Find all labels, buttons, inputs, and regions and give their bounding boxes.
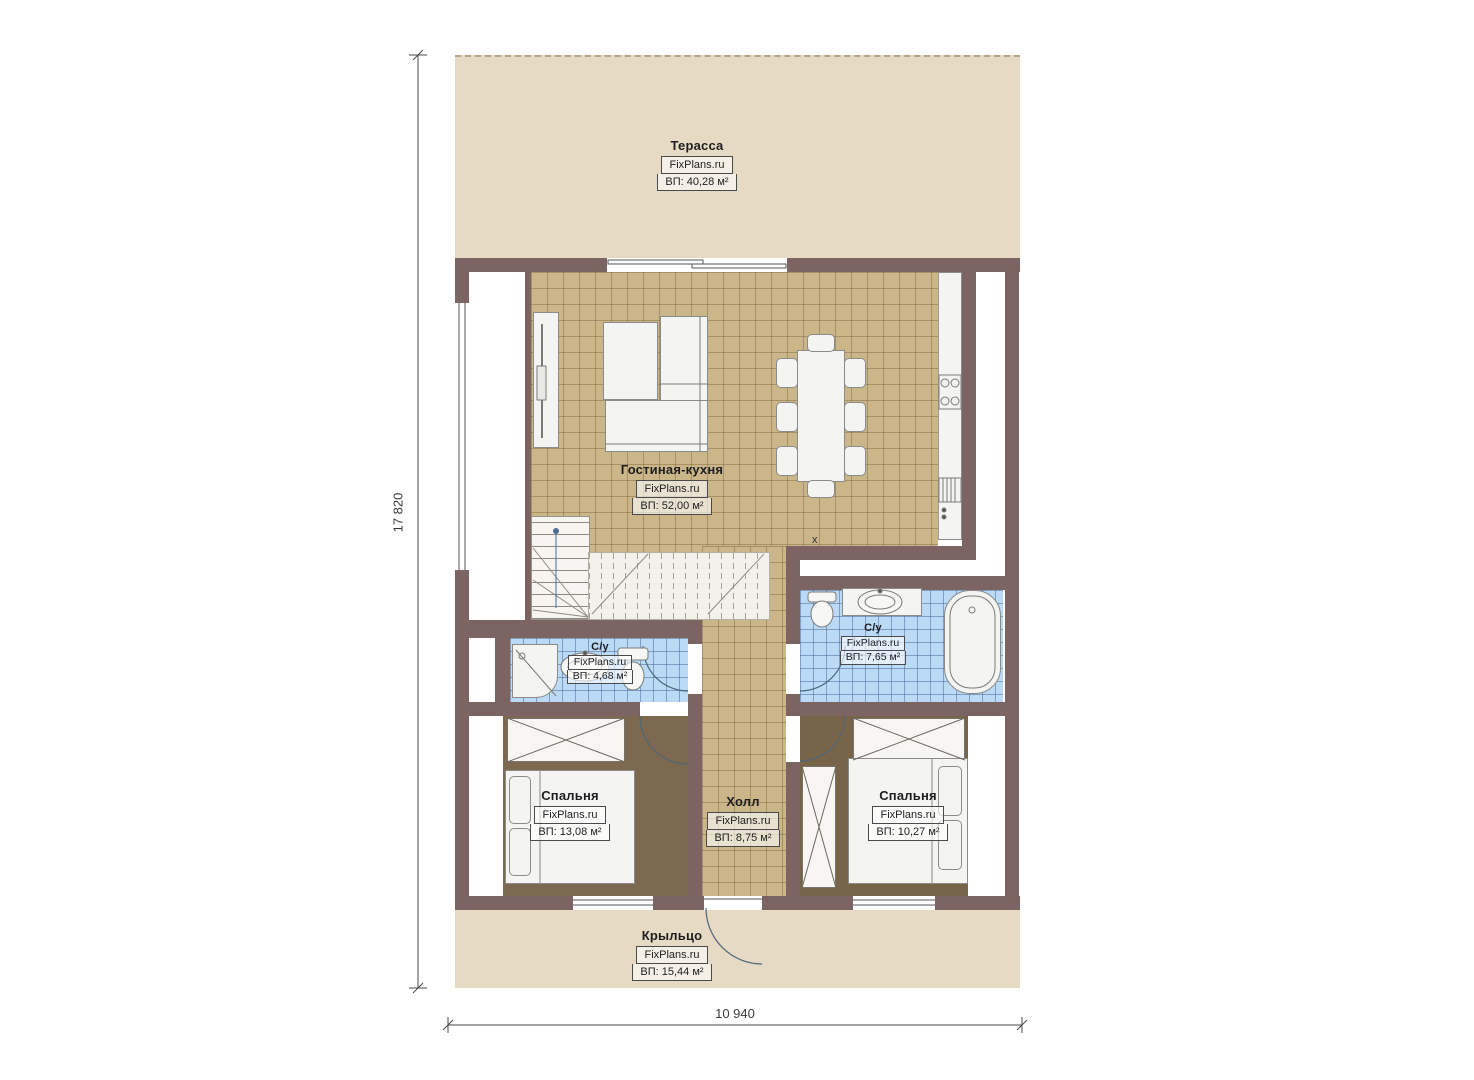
brand-box: FixPlans.ru: [707, 812, 778, 830]
area-box: ВП: 8,75 м²: [706, 830, 779, 847]
wardrobe-bedroom-left: [507, 718, 625, 762]
bedroom-right-door-opening: [786, 716, 800, 762]
kitchen-mark: x: [812, 534, 818, 546]
room-title: Гостиная-кухня: [621, 462, 723, 478]
room-title: Спальня: [879, 788, 937, 804]
wall-bath-big-bottom: [786, 702, 1005, 716]
wall-bath-small-left: [495, 638, 510, 702]
label-bedroom-right: Спальня FixPlans.ru ВП: 10,27 м²: [833, 788, 983, 841]
tv-stand: [533, 312, 559, 448]
dining-chair: [776, 402, 798, 432]
brand-box: FixPlans.ru: [661, 156, 732, 174]
area-box: ВП: 15,44 м²: [632, 964, 711, 981]
area-box: ВП: 7,65 м²: [840, 651, 906, 665]
dimension-width: 10 940: [695, 1006, 775, 1021]
dining-table: [797, 350, 845, 482]
bath-big-vanity: [842, 588, 922, 616]
area-box: ВП: 10,27 м²: [868, 824, 947, 841]
coffee-table: [603, 322, 658, 400]
dining-chair: [807, 334, 835, 352]
room-title: Спальня: [541, 788, 599, 804]
brand-box: FixPlans.ru: [568, 655, 633, 670]
bedroom-left-door-opening: [640, 702, 688, 716]
wardrobe-bedroom-right: [853, 718, 965, 760]
wall-bath-small-top: [469, 620, 702, 638]
staircase: [531, 516, 590, 620]
wall-kitchen-right-inner: [962, 258, 976, 546]
bedroom-right-window: [853, 896, 935, 910]
brand-box: FixPlans.ru: [841, 636, 906, 651]
living-left-window: [455, 303, 469, 570]
label-porch: Крыльцо FixPlans.ru ВП: 15,44 м²: [592, 928, 752, 981]
dimension-height: 17 820: [391, 483, 406, 543]
bedroom-left-window: [573, 896, 653, 910]
bath-small-door-opening: [688, 644, 702, 694]
sofa-horizontal-section: [605, 400, 708, 452]
room-title: С/у: [864, 622, 882, 635]
area-box: ВП: 52,00 м²: [632, 498, 711, 515]
area-box: ВП: 4,68 м²: [567, 670, 633, 684]
label-terrace: Терасса FixPlans.ru ВП: 40,28 м²: [617, 138, 777, 191]
label-living: Гостиная-кухня FixPlans.ru ВП: 52,00 м²: [592, 462, 752, 515]
label-hall: Холл FixPlans.ru ВП: 8,75 м²: [668, 794, 818, 847]
dining-chair: [844, 358, 866, 388]
wall-right: [1005, 258, 1019, 910]
dining-chair: [844, 446, 866, 476]
stair-run: [588, 552, 770, 620]
room-title: Крыльцо: [642, 928, 703, 944]
dining-chair: [776, 446, 798, 476]
bathtub: [944, 590, 1001, 694]
brand-box: FixPlans.ru: [636, 946, 707, 964]
brand-box: FixPlans.ru: [872, 806, 943, 824]
label-bath-big: С/у FixPlans.ru ВП: 7,65 м²: [798, 622, 948, 665]
kitchen-counter: [938, 272, 962, 540]
area-box: ВП: 40,28 м²: [657, 174, 736, 191]
brand-box: FixPlans.ru: [636, 480, 707, 498]
room-title: Холл: [726, 794, 759, 810]
room-title: Терасса: [671, 138, 724, 154]
wall-living-left-inner: [525, 272, 531, 638]
wall-kitchen-bottom: [786, 546, 976, 560]
dining-chair: [776, 358, 798, 388]
label-bath-small: С/у FixPlans.ru ВП: 4,68 м²: [525, 641, 675, 684]
floor-plan-canvas: Терасса FixPlans.ru ВП: 40,28 м² Гостина…: [0, 0, 1474, 1080]
entrance-door-opening: [704, 896, 762, 910]
dining-chair: [844, 402, 866, 432]
label-bedroom-left: Спальня FixPlans.ru ВП: 13,08 м²: [495, 788, 645, 841]
brand-box: FixPlans.ru: [534, 806, 605, 824]
dining-chair: [807, 480, 835, 498]
terrace-sliding-door-opening: [607, 258, 787, 272]
area-box: ВП: 13,08 м²: [530, 824, 609, 841]
room-title: С/у: [591, 641, 609, 654]
